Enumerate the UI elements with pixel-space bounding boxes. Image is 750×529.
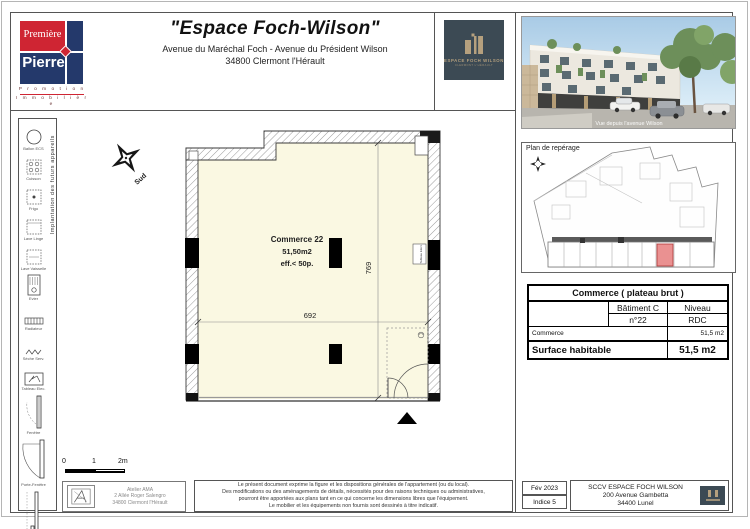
header-divider-horizontal — [10, 110, 515, 111]
dishwasher-icon — [25, 248, 43, 266]
table-empty-cell — [529, 302, 609, 326]
ama-logo-icon — [71, 488, 91, 505]
legend-item-lave-vaisselle: Lave Vaisselle — [19, 241, 48, 271]
developer-city: 34400 Lunel — [571, 500, 700, 508]
premiere-pierre-logo: Première Pierre — [20, 21, 83, 84]
compass-south-label: Sud — [134, 172, 149, 186]
legend-item-seche-serviette: Sèche Serv. — [19, 331, 48, 361]
dim-width-label: 692 — [304, 311, 317, 320]
compass-rose: Sud — [100, 133, 158, 199]
scale-bar-segment2 — [95, 469, 125, 473]
mini-logo-text — [706, 499, 720, 501]
facade-render-photo: Vue depuis l'avenue Wilson — [521, 16, 736, 129]
table-header-batiment: Bâtiment C — [609, 302, 668, 314]
table-surface-value: 51,5 m2 — [668, 340, 727, 358]
dim-height-label: 769 — [364, 262, 373, 275]
legal-line3: pourront être apportées aux plans tant e… — [195, 496, 512, 503]
table-unit-number: n°22 — [609, 314, 668, 326]
legend-sidebar: Implantation des futurs appareils Ballon… — [18, 118, 57, 511]
entrance-arrow — [397, 412, 417, 424]
legal-line1: Le présent document exprime la figure et… — [195, 482, 512, 489]
legend-item-porte-fenetre-coulissante: Porte-Fenêtre — [19, 487, 48, 529]
header-divider-vertical — [434, 12, 435, 110]
scale-two: 2m — [118, 458, 128, 465]
table-level: RDC — [668, 314, 727, 326]
legend-item-fenetre: Fenêtre — [19, 391, 48, 435]
mini-compass-icon — [530, 156, 546, 172]
fridge-icon — [25, 188, 43, 206]
legend-item-porte-fenetre: Porte-Fenêtre — [19, 435, 48, 487]
location-plan-box: Plan de repérage — [521, 142, 736, 273]
legend-item-lave-linge: Lave Linge — [19, 211, 48, 241]
developer-name: SCCV ESPACE FOCH WILSON — [571, 484, 700, 492]
architect-box: Atelier AMA 2 Allée Roger Salengro 34800… — [62, 481, 186, 512]
project-logo: ESPACE FOCH WILSON CLERMONT L'HÉRAULT — [444, 20, 504, 80]
radiator-icon — [24, 316, 44, 326]
legal-notice: Le présent document exprime la figure et… — [194, 480, 513, 512]
room-capacity: eff.< 50p. — [281, 259, 314, 268]
table-title: Commerce ( plateau brut ) — [529, 286, 727, 302]
spec-table: Commerce ( plateau brut ) Bâtiment C Niv… — [527, 284, 729, 360]
table-commerce-label: Commerce — [529, 326, 668, 340]
project-logo-name: ESPACE FOCH WILSON — [444, 58, 504, 63]
plan-sheet: Première Pierre P r o m o t i o n I m m … — [0, 0, 750, 529]
scale-one: 1 — [92, 458, 96, 465]
electric-panel-label: Tableau Elect. — [419, 244, 423, 263]
storefront-stub-left — [186, 393, 198, 401]
legal-line4: Le mobilier et les équipements non fourn… — [195, 503, 512, 510]
architect-address: Atelier AMA 2 Allée Roger Salengro 34800… — [95, 487, 185, 506]
room-floor — [198, 143, 428, 399]
scale-zero: 0 — [62, 458, 66, 465]
logo-word-premiere: Première — [20, 29, 65, 40]
logo-baseline-rule — [20, 94, 84, 95]
legend-item-tableau-elec: Tableau Elec. — [19, 361, 48, 391]
scale-bar-segment1 — [65, 469, 95, 473]
developer-box: SCCV ESPACE FOCH WILSON 200 Avenue Gambe… — [570, 480, 729, 511]
project-address: Avenue du Maréchal Foch - Avenue du Prés… — [125, 44, 425, 67]
address-line2: 34800 Clermont l'Hérault — [125, 56, 425, 68]
highlighted-unit — [657, 244, 673, 266]
french-door-icon — [21, 438, 47, 482]
right-column-divider — [515, 12, 516, 513]
address-line1: Avenue du Maréchal Foch - Avenue du Prés… — [125, 44, 425, 56]
logo-grid-hline — [20, 51, 83, 53]
table-commerce-value: 51,5 m2 — [668, 326, 727, 340]
logo-baseline-promotion: P r o m o t i o n — [14, 87, 90, 93]
floor-plan: Tableau Elect. 769 692 Commerce 22 51,50… — [178, 122, 470, 434]
legend-item-evier: Evier — [19, 271, 48, 301]
legend-items: Ballon ECS Cuisson Frigo Lave Linge Lave… — [19, 121, 48, 529]
legend-item-cuisson: Cuisson — [19, 151, 48, 181]
architect-city: 34800 Clermont l'Hérault — [95, 500, 185, 506]
legend-vertical-label: Implantation des futurs appareils — [50, 135, 56, 234]
water-heater-icon — [25, 128, 43, 146]
table-surface-label: Surface habitable — [529, 340, 668, 358]
sink-icon — [24, 274, 44, 296]
washing-machine-icon — [25, 218, 43, 236]
mini-building-icon — [708, 490, 718, 497]
location-plan-title: Plan de repérage — [526, 145, 580, 152]
developer-address: SCCV ESPACE FOCH WILSON 200 Avenue Gambe… — [571, 484, 700, 508]
logo-word-pierre: Pierre — [21, 54, 66, 71]
electric-panel-icon — [24, 372, 44, 386]
logo-baseline: P r o m o t i o n I m m o b i l i è r e — [14, 87, 90, 108]
legend-item-ballon-ecs: Ballon ECS — [19, 121, 48, 151]
developer-mini-logo — [700, 486, 725, 505]
project-logo-tagline: CLERMONT L'HÉRAULT — [455, 64, 493, 67]
room-name: Commerce 22 — [271, 235, 324, 244]
site-plan-drawing — [522, 143, 735, 272]
legend-item-radiateur: Radiateur — [19, 301, 48, 331]
revision-index-box: Indice 5 — [522, 495, 567, 509]
legend-item-frigo: Frigo — [19, 181, 48, 211]
window-icon — [23, 394, 45, 430]
corner-post — [189, 151, 198, 160]
photo-caption: Vue depuis l'avenue Wilson — [595, 121, 662, 127]
developer-street: 200 Avenue Gambetta — [571, 492, 700, 500]
cooktop-icon — [25, 158, 43, 176]
architect-logo — [67, 485, 95, 508]
duct-opening — [415, 136, 428, 155]
logo-baseline-immobiliere: I m m o b i l i è r e — [14, 96, 90, 108]
table-header-niveau: Niveau — [668, 302, 727, 314]
page-title: "Espace Foch-Wilson" — [125, 18, 425, 40]
building-icon — [461, 33, 487, 55]
storefront-stub-right — [428, 393, 440, 401]
sliding-door-icon — [22, 490, 46, 529]
legal-line2: Des modifications ou des aménagements de… — [195, 489, 512, 496]
towel-dryer-icon — [24, 348, 44, 356]
date-box: Fév 2023 — [522, 481, 567, 495]
facade-render-illustration: Vue depuis l'avenue Wilson — [522, 17, 736, 129]
room-area: 51,50m2 — [282, 247, 312, 256]
title-block: "Espace Foch-Wilson" Avenue du Maréchal … — [125, 18, 425, 67]
